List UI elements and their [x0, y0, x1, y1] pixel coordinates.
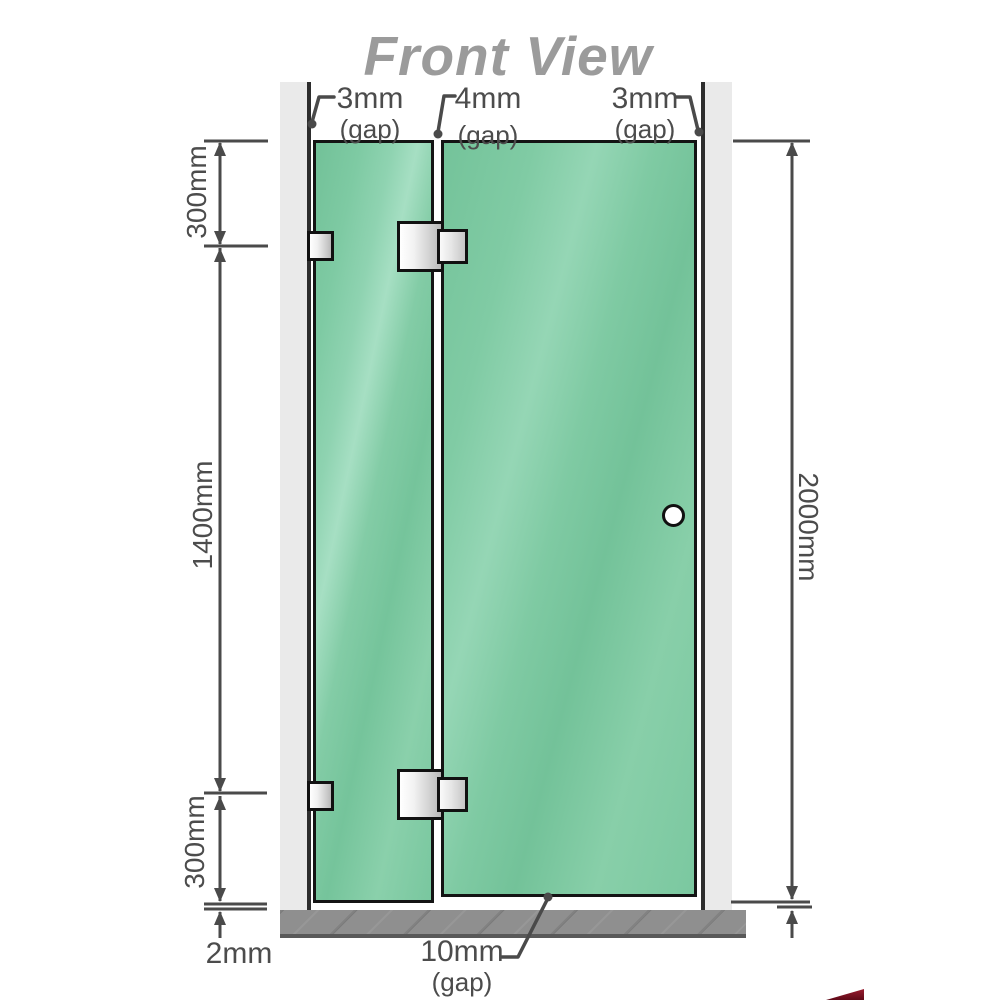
- gap-label-bottom: 10mm (gap): [412, 936, 512, 996]
- wall-bracket-bottom: [307, 781, 334, 811]
- gap-caption-top-left: (gap): [326, 116, 414, 143]
- door-glass-panel: [441, 140, 697, 897]
- front-view-diagram: Front View: [0, 0, 1000, 1000]
- gap-value-top-right: 3mm: [601, 83, 689, 115]
- dimension-label-2mm: 2mm: [194, 938, 284, 970]
- gap-label-top-right: 3mm (gap): [601, 83, 689, 143]
- diagram-title: Front View: [308, 24, 708, 88]
- gap-value-top-left: 3mm: [326, 83, 414, 115]
- gap-value-top-middle: 4mm: [444, 83, 532, 115]
- wall-bracket-top: [307, 231, 334, 261]
- gap-caption-bottom: (gap): [412, 969, 512, 996]
- gap-caption-top-right: (gap): [601, 116, 689, 143]
- gap-label-top-left: 3mm (gap): [326, 83, 414, 143]
- hinge-top-small-plate: [437, 229, 468, 264]
- gap-caption-top-middle: (gap): [444, 122, 532, 149]
- gap-label-top-middle: 4mm (gap): [444, 83, 532, 149]
- dimension-label-300mm-top: 300mm: [182, 122, 212, 262]
- hinge-bottom-small-plate: [437, 777, 468, 812]
- door-knob: [662, 504, 685, 527]
- gap-value-bottom: 10mm: [412, 936, 512, 968]
- dimension-label-300mm-bottom: 300mm: [180, 772, 210, 912]
- wall-channel-right: [701, 82, 732, 910]
- dimension-label-2000mm: 2000mm: [793, 457, 823, 597]
- floor-base: [280, 910, 746, 938]
- dimension-label-1400mm: 1400mm: [188, 445, 218, 585]
- watermark-shape: [826, 987, 864, 1000]
